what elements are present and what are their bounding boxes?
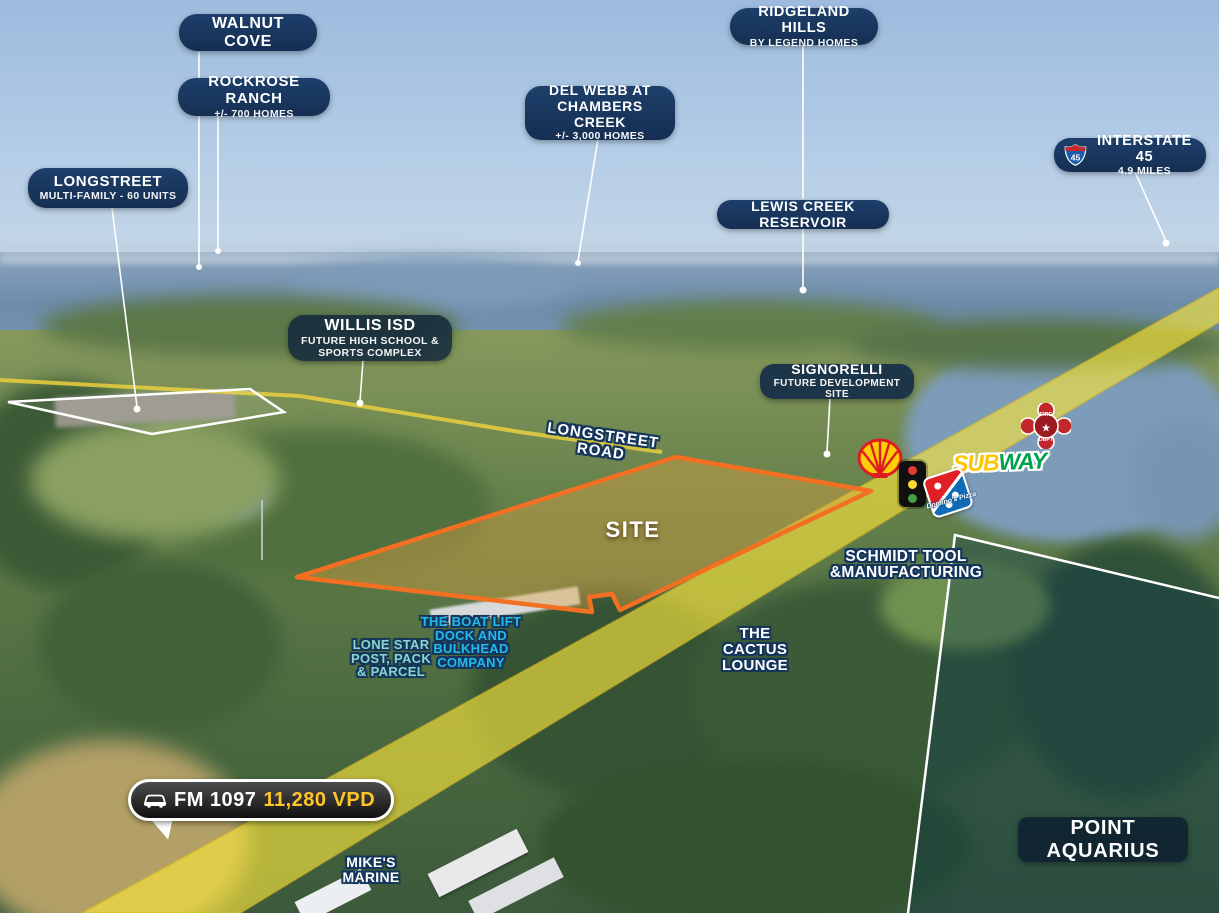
lone-star-label: LONE STAR POST, PACK & PARCEL (344, 638, 438, 679)
subway-way-text: WAY (998, 447, 1047, 475)
leader-dot (800, 287, 807, 294)
traffic-count-badge: FM 1097 11,280 VPD (128, 779, 394, 821)
cactus-lounge-label: THE CACTUS LOUNGE (705, 626, 805, 673)
chip-title: RIDGELAND HILLS (740, 4, 868, 36)
chip-willis-isd: WILLIS ISD FUTURE HIGH SCHOOL & SPORTS C… (288, 315, 452, 361)
leader-dot (134, 406, 141, 413)
leader-signorelli (827, 398, 830, 452)
school-site-outline (8, 389, 284, 434)
chip-interstate-45: 45 INTERSTATE 45 4.9 MILES (1054, 138, 1206, 172)
chip-subtitle: FUTURE DEVELOPMENT SITE (770, 378, 904, 401)
mikes-marine-label: MIKE'S MARINE (324, 855, 418, 884)
shell-logo-icon (856, 437, 904, 479)
leader-longstreet (112, 208, 137, 407)
chip-subtitle: +/- 700 HOMES (214, 108, 294, 120)
chip-longstreet-multifamily: LONGSTREET MULTI-FAMILY - 60 UNITS (28, 168, 188, 208)
chip-subtitle: 4.9 MILES (1118, 165, 1171, 177)
chip-title: LEWIS CREEK RESERVOIR (727, 199, 879, 230)
red-light (908, 466, 917, 475)
shield-number: 45 (1071, 153, 1081, 163)
chip-title: SIGNORELLI (791, 362, 883, 378)
leader-dot (824, 451, 831, 458)
chip-title: ROCKROSE RANCH (188, 74, 320, 108)
leader-dot (357, 400, 364, 407)
schmidt-tool-label: SCHMIDT TOOL &MANUFACTURING (816, 549, 996, 582)
chip-subtitle: FUTURE HIGH SCHOOL & SPORTS COMPLEX (301, 335, 439, 359)
leader-dot (215, 248, 221, 254)
leader-dot (575, 260, 581, 266)
leader-interstate45 (1135, 172, 1166, 241)
chip-lewis-creek-reservoir: LEWIS CREEK RESERVOIR (717, 200, 889, 229)
fire-dept-badge-icon: FIRE ★ DEPT (1021, 403, 1071, 449)
chip-title: POINT AQUARIUS (1028, 817, 1178, 862)
car-icon (143, 792, 167, 808)
chip-title: INTERSTATE 45 (1093, 133, 1196, 165)
chip-title: WALNUT COVE (189, 15, 307, 51)
chip-signorelli: SIGNORELLI FUTURE DEVELOPMENT SITE (760, 364, 914, 399)
fire-badge-bottom-text: DEPT (1039, 437, 1054, 443)
chip-subtitle: +/- 3,000 HOMES (555, 130, 644, 142)
chip-ridgeland-hills: RIDGELAND HILLS BY LEGEND HOMES (730, 8, 878, 45)
traffic-vpd-count: 11,280 VPD (263, 789, 375, 812)
aerial-site-map: SUBWAY Domino's Pizza FIRE ★ DEPT LONGST… (0, 0, 1219, 913)
leader-willis-isd (360, 360, 363, 401)
yellow-light (908, 480, 917, 489)
fire-badge-top-text: FIRE (1040, 412, 1053, 418)
chip-rockrose-ranch: ROCKROSE RANCH +/- 700 HOMES (178, 78, 330, 116)
chip-subtitle: BY LEGEND HOMES (750, 37, 859, 49)
green-light (908, 494, 917, 503)
fire-badge-star: ★ (1041, 423, 1051, 435)
leader-del-webb (578, 139, 598, 261)
chip-title: WILLIS ISD (324, 317, 415, 335)
leader-dot (196, 264, 202, 270)
chip-point-aquarius: POINT AQUARIUS (1018, 817, 1188, 862)
site-label: SITE (596, 518, 670, 541)
chip-title: DEL WEBB AT CHAMBERS CREEK (535, 83, 665, 130)
chip-subtitle: MULTI-FAMILY - 60 UNITS (40, 190, 177, 202)
leader-dot (1163, 240, 1170, 247)
traffic-road-name: FM 1097 (174, 789, 256, 812)
chip-del-webb: DEL WEBB AT CHAMBERS CREEK +/- 3,000 HOM… (525, 86, 675, 140)
dominos-pip (933, 482, 942, 491)
chip-walnut-cove: WALNUT COVE (179, 14, 317, 51)
interstate-45-shield-icon: 45 (1064, 142, 1087, 168)
chip-title: LONGSTREET (54, 174, 163, 191)
